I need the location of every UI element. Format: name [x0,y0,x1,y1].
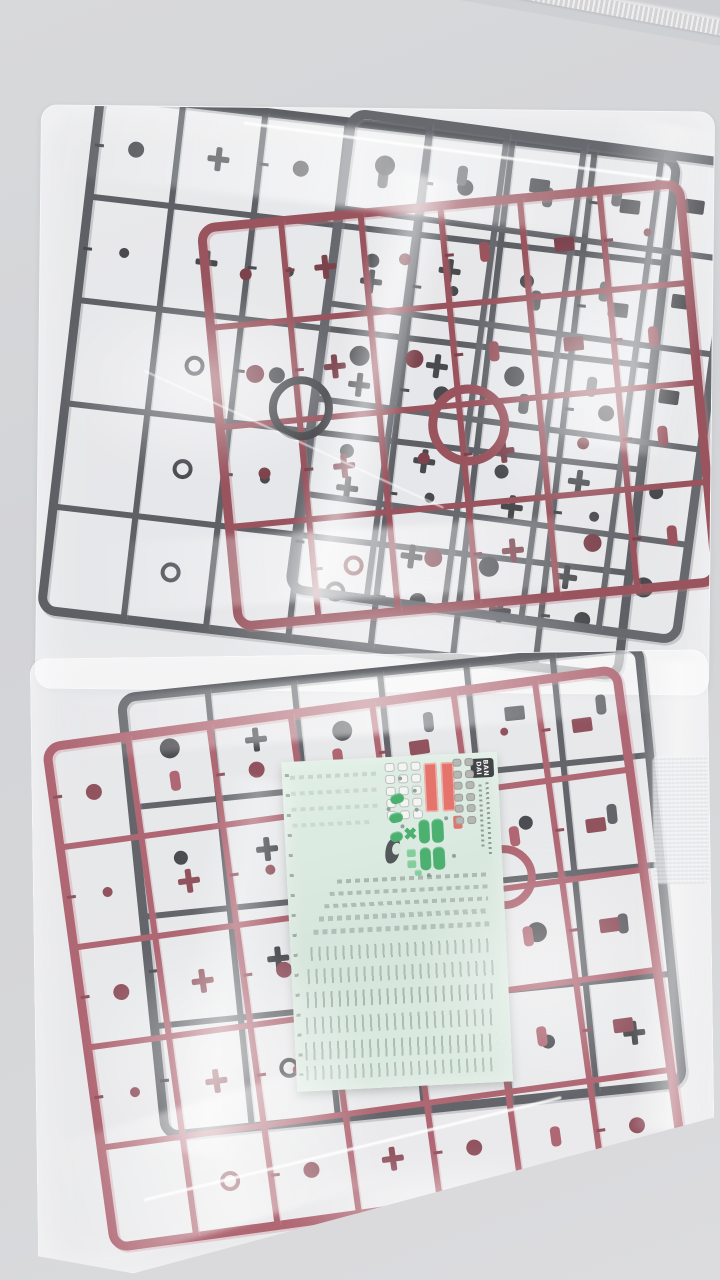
top-sprue-bag [35,104,715,695]
bottom-sprue-bag: BAN DAI [30,649,717,1274]
bag-film-wash [31,650,716,1273]
bag-film-wash [36,105,714,694]
bag-texture-patch [652,755,710,884]
photo-scene: BAN DAI [0,0,720,1280]
